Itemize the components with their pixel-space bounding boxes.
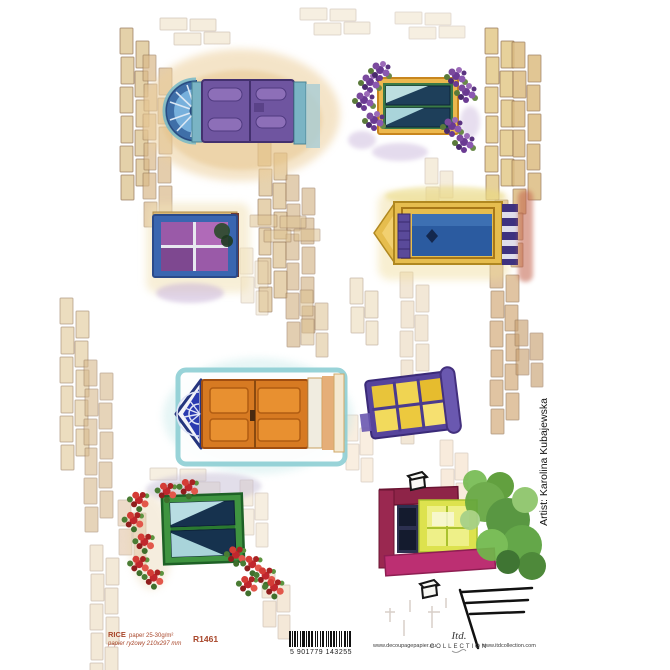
footer: RICE paper 25-30g/m² papier ryżowy 210x2…	[107, 630, 536, 656]
brand-logo: www.decoupagepapier.eu Itd. COLLECTION w…	[372, 630, 536, 653]
lantern-icon	[408, 472, 427, 490]
product-code: R1461	[193, 634, 218, 644]
logo-script: Itd.	[451, 630, 467, 642]
barcode-digits: 5 901779 143255	[290, 649, 352, 656]
rice-paper-sheet: Artist: Karolina Kubajewska RICE paper 2…	[0, 0, 670, 670]
website-left: www.decoupagepapier.eu	[372, 643, 436, 649]
decoupage-artwork: Artist: Karolina Kubajewska RICE paper 2…	[0, 0, 670, 670]
spec-line2: papier ryżowy 210x297 mm	[107, 641, 181, 647]
website-right: www.itdcollection.com	[481, 643, 536, 649]
paper-spec: RICE paper 25-30g/m² papier ryżowy 210x2…	[107, 630, 218, 647]
barcode: 5 901779 143255	[289, 639, 353, 656]
motif-purple-pane-window	[146, 203, 250, 303]
motif-blue-door-gold-portal	[374, 186, 533, 282]
logo-word: COLLECTION	[430, 644, 488, 650]
railing-sketch	[460, 588, 532, 648]
lantern-icon	[420, 580, 439, 598]
pencil-sketch-marks	[385, 598, 446, 636]
artist-credit: Artist: Karolina Kubajewska	[538, 398, 550, 526]
brand-word: RICE	[108, 630, 126, 639]
motif-orange-door-blue-fanlight	[163, 358, 353, 474]
motif-purple-arched-door	[140, 49, 340, 181]
motif-green-window-purple-flowers	[348, 61, 480, 161]
motif-yellow-lit-window	[355, 366, 461, 444]
spec-line1: paper 25-30g/m²	[129, 633, 173, 639]
